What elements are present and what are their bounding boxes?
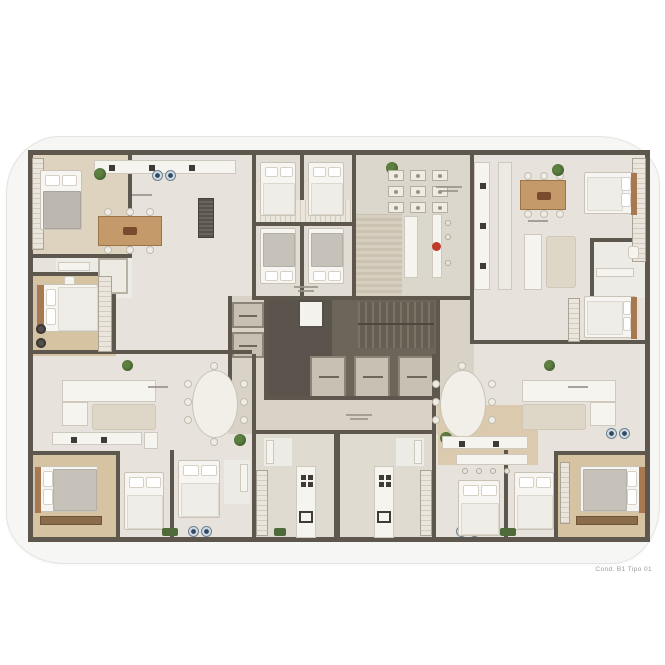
appliance xyxy=(308,475,313,480)
terrace-table xyxy=(432,202,448,213)
plant-icon xyxy=(94,168,106,180)
terrace-table xyxy=(432,170,448,181)
pouf xyxy=(36,324,46,334)
washer-icon xyxy=(201,526,212,537)
chair xyxy=(240,398,248,406)
stool xyxy=(445,220,451,226)
pillow xyxy=(313,167,326,177)
stairs xyxy=(358,302,434,348)
blanket xyxy=(53,469,97,511)
stool xyxy=(445,234,451,240)
chair xyxy=(432,398,440,406)
pillow xyxy=(463,485,479,496)
appliance xyxy=(189,165,195,171)
pillow xyxy=(265,271,278,281)
bath-vanity xyxy=(58,262,90,271)
stool xyxy=(445,260,451,266)
red-marker xyxy=(432,242,441,251)
pillow xyxy=(627,471,637,487)
pillow xyxy=(627,489,637,505)
wall xyxy=(252,296,474,300)
room-label xyxy=(350,418,368,420)
toilet xyxy=(628,246,639,259)
room-label xyxy=(436,186,462,188)
pillow xyxy=(265,167,278,177)
bath-vanity xyxy=(240,464,248,492)
closet xyxy=(256,470,268,536)
elevator-label xyxy=(407,376,427,378)
closet xyxy=(560,462,570,524)
wall xyxy=(28,451,120,455)
table-decor xyxy=(123,227,137,235)
stool xyxy=(490,468,496,474)
doormat xyxy=(162,528,178,536)
pillow xyxy=(623,301,631,315)
appliance xyxy=(379,482,384,487)
blanket xyxy=(263,233,295,267)
bed xyxy=(308,162,344,216)
pouf xyxy=(36,338,46,348)
pillow xyxy=(519,477,534,488)
elevator-cab xyxy=(232,302,264,328)
chair xyxy=(488,416,496,424)
washer-icon xyxy=(619,428,630,439)
blanket xyxy=(58,287,98,331)
wall xyxy=(264,396,440,400)
bed xyxy=(40,170,82,230)
stool xyxy=(462,468,468,474)
fridge xyxy=(144,432,158,449)
blanket xyxy=(587,301,623,335)
chair xyxy=(104,246,112,254)
table-decor xyxy=(537,192,551,200)
appliance xyxy=(386,482,391,487)
pillow xyxy=(43,471,53,487)
sofa-chaise xyxy=(62,402,88,426)
room-label xyxy=(346,414,372,416)
room-label xyxy=(298,290,314,292)
appliance xyxy=(301,482,306,487)
sofa-chaise xyxy=(590,402,616,426)
pillow xyxy=(43,489,53,505)
plan-caption: Cond. B1 Tipo 01 xyxy=(532,566,652,573)
room-label xyxy=(528,220,548,222)
washer-icon xyxy=(606,428,617,439)
dining-table-wood xyxy=(98,216,162,246)
blanket xyxy=(127,495,163,529)
washer-icon xyxy=(188,526,199,537)
chair xyxy=(104,208,112,216)
room-label xyxy=(132,194,152,196)
pillow xyxy=(623,317,631,331)
shaft xyxy=(298,300,324,328)
wall xyxy=(116,451,120,542)
chair xyxy=(524,210,532,218)
plant-icon xyxy=(122,360,133,371)
bed xyxy=(260,228,296,284)
oven xyxy=(377,511,391,523)
bed xyxy=(178,460,220,518)
blanket xyxy=(311,183,343,215)
stool xyxy=(476,468,482,474)
pillow xyxy=(46,289,56,306)
elevator-cab xyxy=(398,356,434,398)
rug xyxy=(522,404,586,430)
bed xyxy=(584,296,636,338)
oven xyxy=(299,511,313,523)
terrace-table xyxy=(410,186,426,197)
sofa xyxy=(524,234,542,290)
breakfast-bar xyxy=(456,454,528,465)
washer-icon xyxy=(165,170,176,181)
wall xyxy=(470,340,650,344)
appliance xyxy=(109,165,115,171)
bed xyxy=(514,472,554,530)
doormat xyxy=(274,528,286,536)
washer-icon xyxy=(152,170,163,181)
room-label xyxy=(148,386,168,388)
closet xyxy=(568,298,580,342)
rug xyxy=(546,236,576,288)
pillow xyxy=(536,477,551,488)
chair xyxy=(432,380,440,388)
elevator-label xyxy=(239,345,257,347)
wardrobe xyxy=(198,198,214,238)
sofa xyxy=(62,380,156,402)
elevator-label xyxy=(239,315,257,317)
kitchen-counter xyxy=(442,436,528,449)
dining-table-oval xyxy=(192,370,238,438)
plant-icon xyxy=(552,164,564,176)
chair xyxy=(540,172,548,180)
chair xyxy=(184,380,192,388)
headboard xyxy=(35,467,41,513)
terrace-counter xyxy=(404,216,418,278)
dining-table-oval xyxy=(440,370,486,438)
chair xyxy=(488,398,496,406)
chair xyxy=(210,362,218,370)
wall xyxy=(554,451,558,542)
appliance xyxy=(301,475,306,480)
chair xyxy=(146,246,154,254)
blanket xyxy=(43,191,81,229)
wall xyxy=(28,350,252,354)
chair xyxy=(126,208,134,216)
floor-plan-page: Cond. B1 Tipo 01 xyxy=(0,0,665,665)
terrace-table xyxy=(388,186,404,197)
wall xyxy=(28,150,650,155)
kitchen-counter xyxy=(52,432,142,445)
chair xyxy=(540,210,548,218)
appliance xyxy=(459,441,465,447)
bed xyxy=(580,466,644,512)
doormat xyxy=(500,528,516,536)
chair xyxy=(458,362,466,370)
blanket xyxy=(583,469,627,511)
pillow xyxy=(46,308,56,325)
chair xyxy=(524,172,532,180)
wall xyxy=(300,150,304,296)
dining-table-wood xyxy=(520,180,566,210)
kitchen-counter xyxy=(296,466,316,538)
chair xyxy=(432,416,440,424)
chair xyxy=(210,438,218,446)
room-label xyxy=(294,286,318,288)
elevator-cab xyxy=(310,356,346,398)
bed xyxy=(34,466,98,512)
bed xyxy=(458,480,500,536)
room-label xyxy=(440,190,458,192)
elevator-label xyxy=(363,376,383,378)
terrace-table xyxy=(388,202,404,213)
chair xyxy=(184,416,192,424)
headboard xyxy=(631,173,637,215)
appliance xyxy=(480,183,486,189)
blanket xyxy=(461,503,499,535)
wall xyxy=(334,434,340,542)
kitchen-counter xyxy=(474,162,490,290)
bed xyxy=(36,284,98,332)
desk xyxy=(576,516,638,525)
elevator-label xyxy=(319,376,339,378)
pillow xyxy=(313,271,326,281)
kitchen-counter xyxy=(374,466,394,538)
blanket xyxy=(517,495,553,529)
headboard xyxy=(631,297,637,339)
plant-icon xyxy=(234,434,246,446)
headboard xyxy=(639,467,645,513)
chair xyxy=(556,210,564,218)
bath-vanity xyxy=(414,440,422,464)
wall xyxy=(264,296,268,400)
bath-vanity xyxy=(266,440,274,464)
bed xyxy=(124,472,164,530)
pillow xyxy=(328,167,341,177)
appliance xyxy=(101,437,107,443)
bath-vanity xyxy=(596,268,634,277)
room-label xyxy=(568,386,588,388)
chair xyxy=(240,380,248,388)
bed xyxy=(308,228,344,284)
appliance xyxy=(480,223,486,229)
bed xyxy=(584,172,636,214)
pillow xyxy=(328,271,341,281)
elevator-cab xyxy=(232,332,264,358)
plant-icon xyxy=(544,360,555,371)
appliance xyxy=(480,263,486,269)
closet xyxy=(420,470,432,536)
blanket xyxy=(181,483,219,517)
terrace-table xyxy=(410,170,426,181)
terrace-table xyxy=(410,202,426,213)
pillow xyxy=(280,167,293,177)
blanket xyxy=(311,233,343,267)
wall xyxy=(252,430,436,434)
stairs-landing xyxy=(358,323,434,325)
floor-plan xyxy=(28,150,650,542)
chair xyxy=(488,380,496,388)
wall xyxy=(590,238,594,296)
chair xyxy=(240,416,248,424)
blanket xyxy=(263,183,295,215)
kitchen-island xyxy=(498,162,512,290)
chair xyxy=(184,398,192,406)
appliance xyxy=(386,475,391,480)
pillow xyxy=(62,175,77,186)
elevator-cab xyxy=(354,356,390,398)
chair xyxy=(146,208,154,216)
pillow xyxy=(129,477,144,488)
appliance xyxy=(308,482,313,487)
pillow xyxy=(183,465,199,476)
wall xyxy=(558,451,650,455)
closet xyxy=(98,276,112,352)
terrace-table xyxy=(388,170,404,181)
pillow xyxy=(621,193,631,207)
chair xyxy=(126,246,134,254)
pillow xyxy=(481,485,497,496)
pillow xyxy=(201,465,217,476)
appliance xyxy=(71,437,77,443)
appliance xyxy=(379,475,384,480)
pillow xyxy=(45,175,60,186)
pillow xyxy=(146,477,161,488)
appliance xyxy=(493,441,499,447)
stool xyxy=(504,468,510,474)
rug xyxy=(92,404,156,430)
pillow xyxy=(280,271,293,281)
sofa xyxy=(522,380,616,402)
desk xyxy=(40,516,102,525)
pillow xyxy=(621,177,631,191)
deck xyxy=(356,214,402,296)
blanket xyxy=(587,177,623,211)
bed xyxy=(260,162,296,216)
